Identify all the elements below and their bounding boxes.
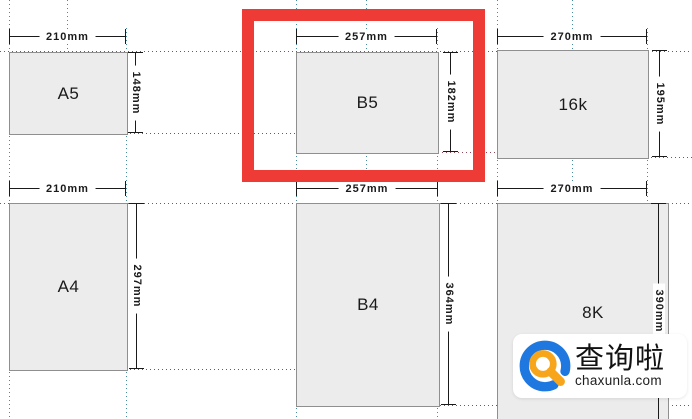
- paper-label-b4: B4: [357, 295, 379, 315]
- paper-box-16k: 16k: [497, 50, 649, 159]
- dimension-width-a4: 210mm: [9, 181, 126, 196]
- chaxunla-logo-icon: [517, 338, 573, 394]
- dim-tick: [128, 52, 143, 53]
- dim-tick: [497, 29, 498, 44]
- dim-tick: [129, 368, 144, 369]
- chaxunla-watermark: 查询啦 chaxunla.com: [513, 334, 687, 398]
- dimension-width-16k: 270mm: [497, 29, 647, 44]
- dimension-label: 364mm: [443, 277, 455, 332]
- paper-label-16k: 16k: [559, 95, 588, 115]
- paper-box-a4: A4: [9, 203, 128, 371]
- dim-tick: [125, 29, 126, 44]
- dim-tick: [129, 203, 144, 204]
- dim-tick: [128, 132, 143, 133]
- dimension-label: 148mm: [130, 65, 142, 120]
- dimension-label: 390mm: [653, 284, 665, 339]
- dimension-height-b4: 364mm: [441, 203, 456, 405]
- dim-tick: [9, 181, 10, 196]
- dimension-label: 297mm: [131, 259, 143, 314]
- dimension-label: 270mm: [544, 183, 601, 195]
- paper-size-diagram: 210mm A5 148mm 257mm B5 182mm 270mm 16k: [0, 0, 692, 419]
- dimension-label: 210mm: [39, 183, 96, 195]
- guide-line-horizontal: [647, 157, 692, 158]
- dimension-label: 195mm: [654, 76, 666, 131]
- paper-box-b4: B4: [296, 203, 440, 407]
- dimension-height-a4: 297mm: [129, 203, 144, 369]
- dim-tick: [437, 181, 438, 196]
- dim-tick: [296, 181, 297, 196]
- dimension-width-b4: 257mm: [296, 181, 438, 196]
- dimension-label: 270mm: [544, 31, 601, 43]
- b5-highlight-frame: [242, 9, 485, 182]
- dim-tick: [9, 29, 10, 44]
- dim-tick: [646, 29, 647, 44]
- dimension-height-16k: 195mm: [652, 50, 667, 157]
- dim-tick: [652, 50, 667, 51]
- dimension-height-a5: 148mm: [128, 52, 143, 133]
- dim-tick: [497, 181, 498, 196]
- dim-tick: [651, 203, 666, 204]
- dimension-label: 210mm: [39, 31, 96, 43]
- dim-tick: [652, 156, 667, 157]
- dimension-label: 257mm: [339, 183, 396, 195]
- guide-line-horizontal: [126, 369, 296, 370]
- paper-label-8k: 8K: [582, 303, 604, 323]
- dim-tick: [646, 181, 647, 196]
- dim-tick: [441, 203, 456, 204]
- dim-tick: [125, 181, 126, 196]
- dim-tick: [441, 404, 456, 405]
- dimension-width-a5: 210mm: [9, 29, 126, 44]
- paper-box-a5: A5: [9, 52, 128, 135]
- paper-label-a4: A4: [58, 277, 80, 297]
- dimension-width-8k: 270mm: [497, 181, 647, 196]
- watermark-text-block: 查询啦 chaxunla.com: [575, 344, 665, 389]
- logo-magnifier-handle: [551, 372, 561, 382]
- watermark-domain-text: chaxunla.com: [575, 374, 665, 389]
- paper-label-a5: A5: [58, 84, 80, 104]
- watermark-brand-text: 查询啦: [575, 344, 665, 373]
